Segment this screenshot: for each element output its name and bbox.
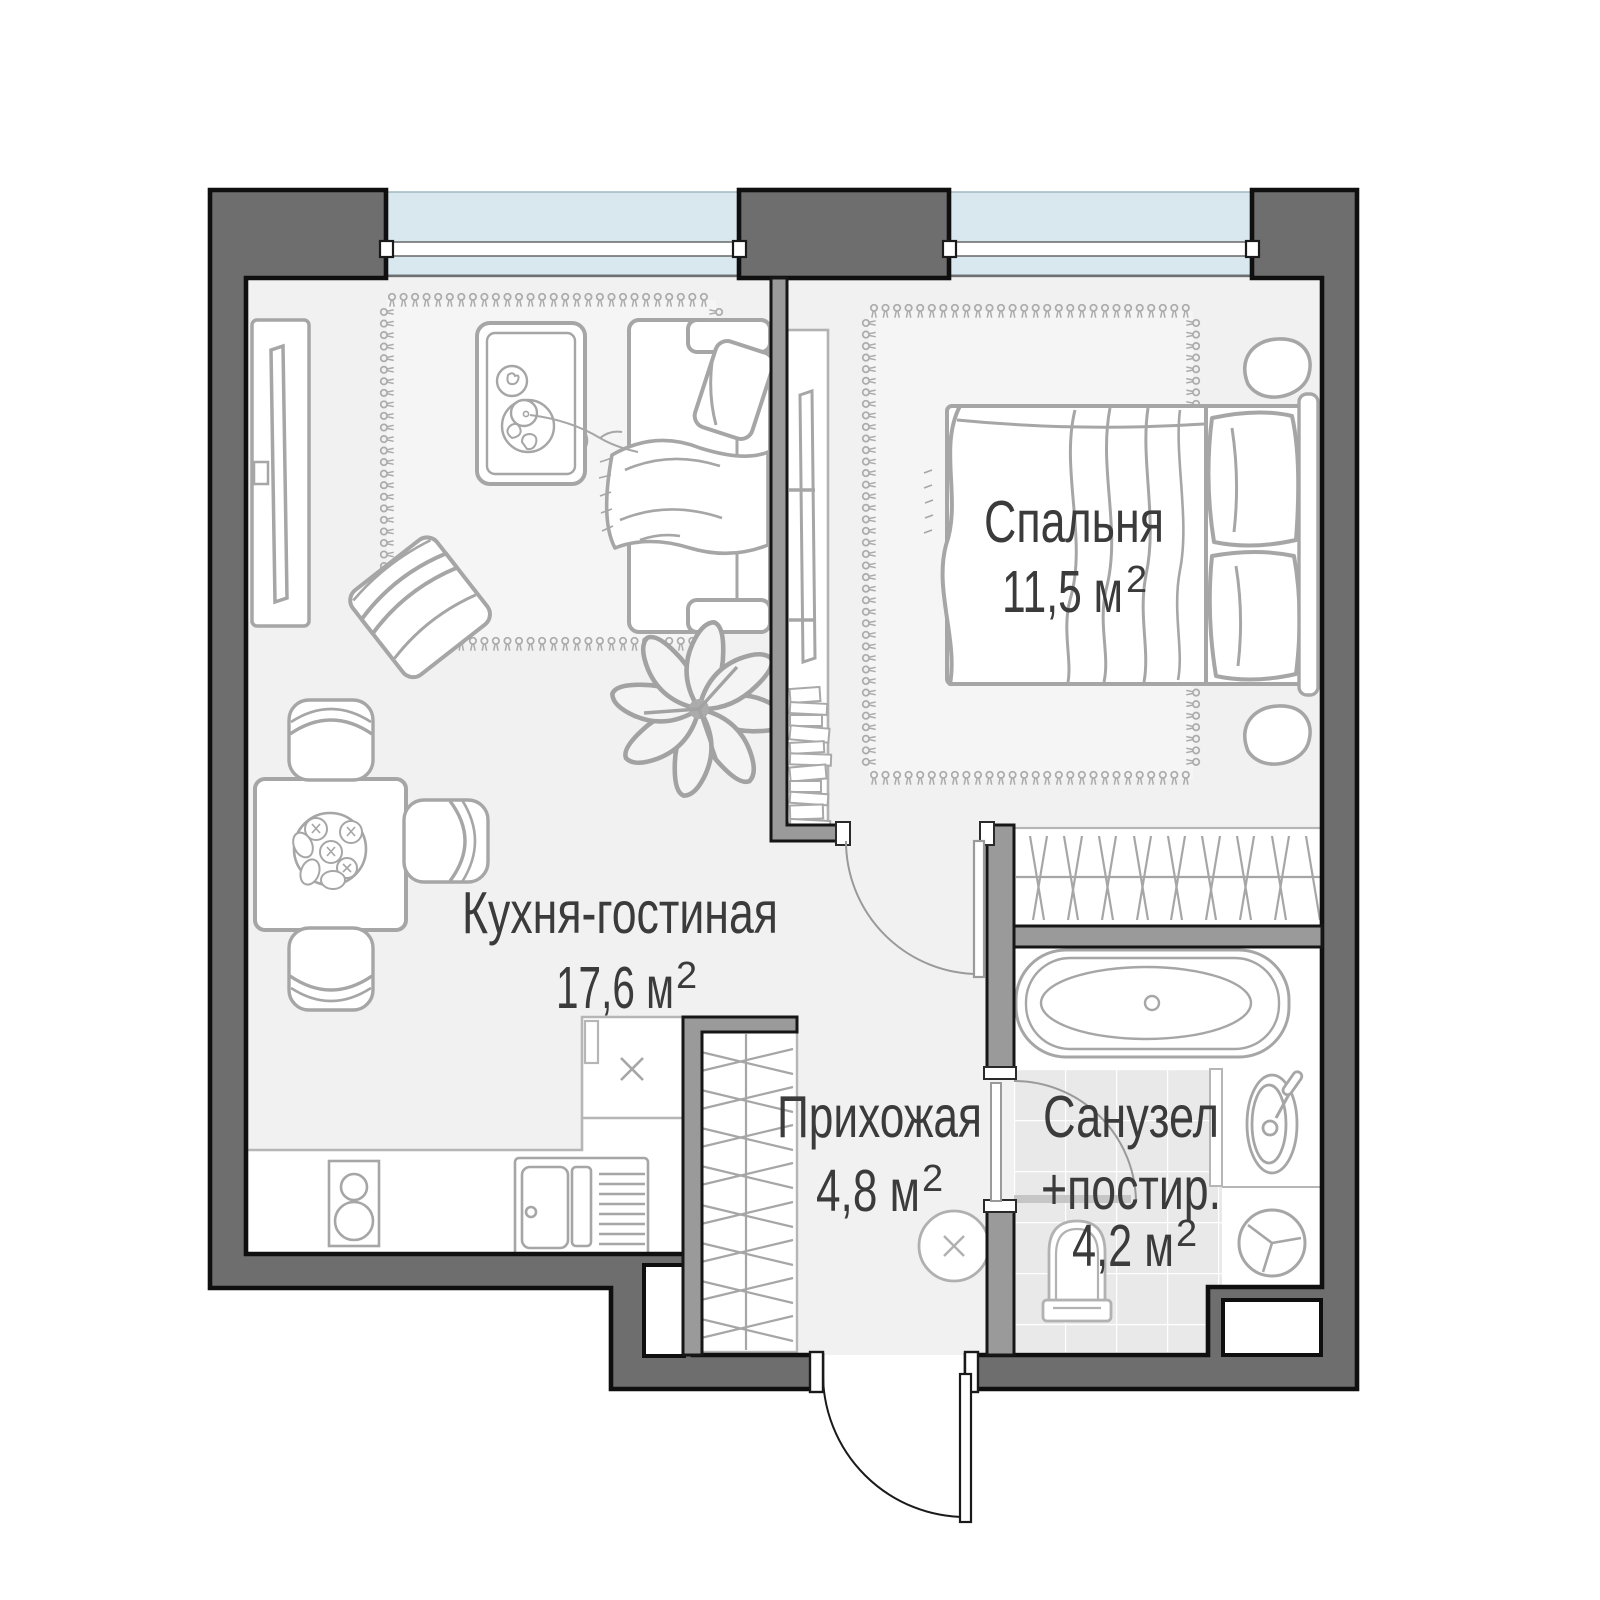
svg-text:17,6 м: 17,6 м	[556, 955, 674, 1021]
svg-text:2: 2	[676, 955, 697, 997]
svg-text:Кухня-гостиная: Кухня-гостиная	[462, 880, 778, 946]
svg-text:4,2 м: 4,2 м	[1072, 1213, 1174, 1279]
svg-text:2: 2	[1126, 559, 1147, 601]
svg-text:Санузел: Санузел	[1043, 1084, 1219, 1150]
svg-text:Прихожая: Прихожая	[777, 1084, 982, 1150]
svg-text:Спальня: Спальня	[984, 489, 1164, 555]
svg-text:11,5 м: 11,5 м	[1002, 559, 1123, 625]
svg-text:2: 2	[922, 1158, 943, 1200]
svg-text:2: 2	[1176, 1213, 1197, 1255]
svg-text:4,8 м: 4,8 м	[816, 1158, 920, 1224]
